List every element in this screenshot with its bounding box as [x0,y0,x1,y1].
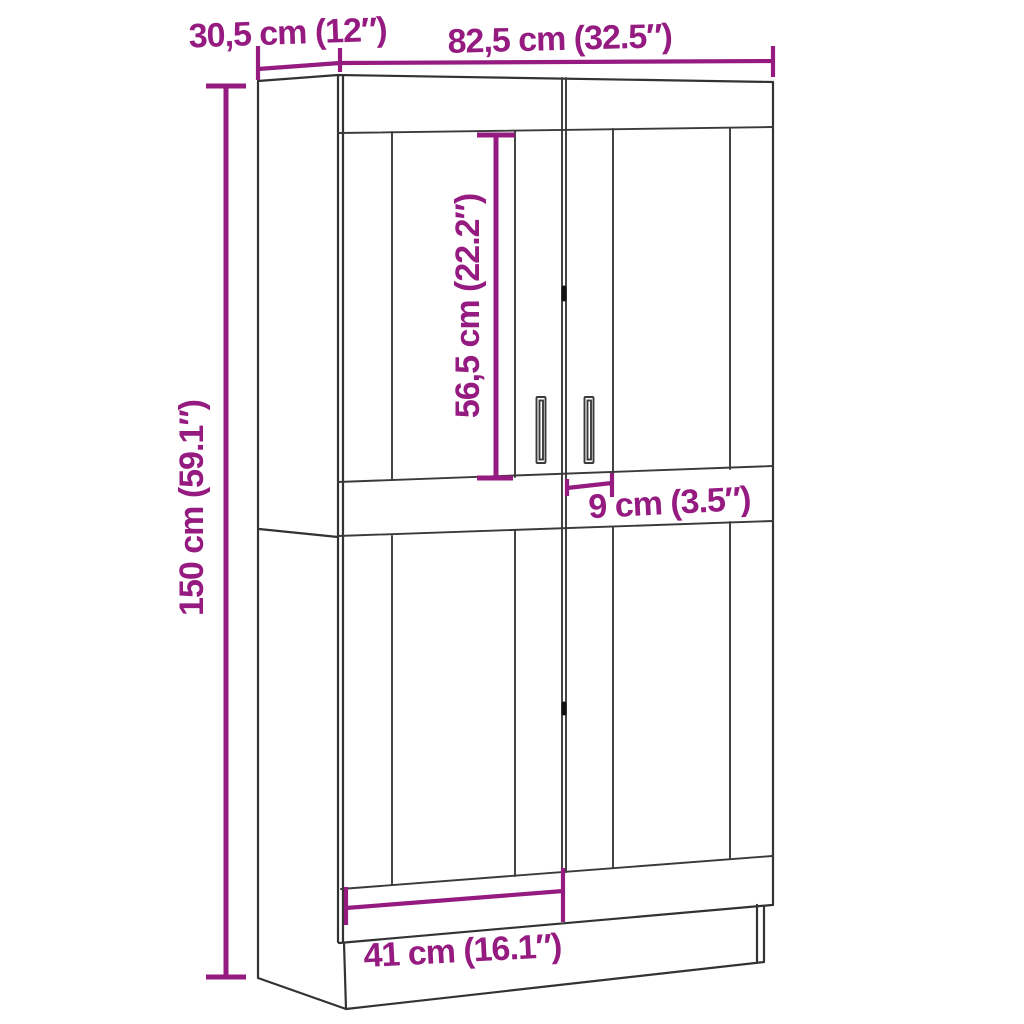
left-door-handle [537,397,546,463]
diagram-canvas: 30,5 cm (12″) 82,5 cm (32.5″) 150 cm (59… [0,0,1024,1024]
dim-height-label: 150 cm (59.1″) [173,400,211,616]
dim-stile-label: 9 cm (3.5″) [587,480,751,526]
dimension-diagram: 30,5 cm (12″) 82,5 cm (32.5″) 150 cm (59… [0,0,1024,1024]
right-door-handle [585,397,594,463]
dim-door-width-line [346,868,563,925]
dim-height-line [206,86,246,977]
dim-panel-height-label: 56,5 cm (22.2″) [449,194,487,418]
cabinet-line-art [258,75,773,1009]
side-panel [258,75,346,1009]
upper-door-panels [392,128,730,480]
lower-door-panels [392,522,730,885]
dim-depth-label: 30,5 cm (12″) [188,11,387,56]
dimension-labels: 30,5 cm (12″) 82,5 cm (32.5″) 150 cm (59… [173,11,751,976]
door-center-gap [562,78,566,873]
dim-width-label: 82,5 cm (32.5″) [447,17,672,61]
dim-door-width-label: 41 cm (16.1″) [363,927,563,975]
